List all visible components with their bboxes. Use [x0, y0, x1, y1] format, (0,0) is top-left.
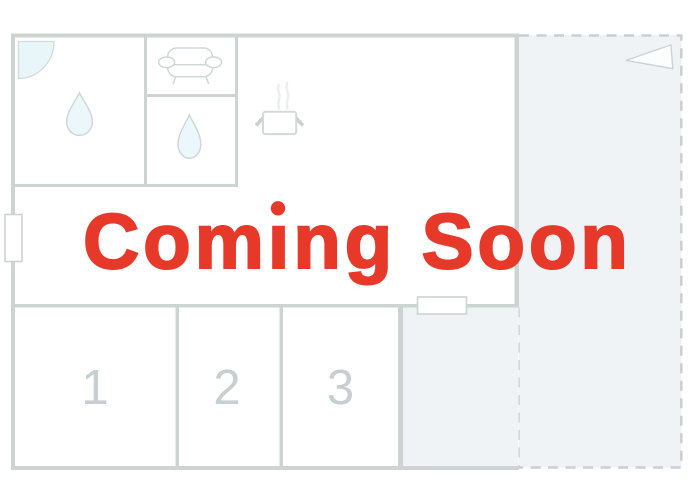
svg-text:3: 3: [327, 361, 354, 415]
svg-text:1: 1: [81, 361, 108, 415]
svg-text:Coming Soon: Coming Soon: [83, 197, 632, 285]
svg-text:2: 2: [213, 361, 240, 415]
